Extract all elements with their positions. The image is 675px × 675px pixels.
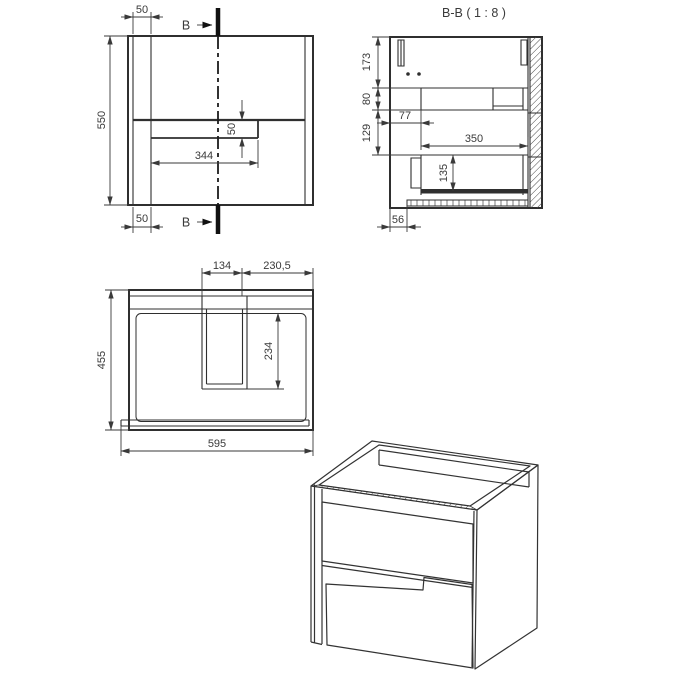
dim-cutout-width-label: 134: [213, 260, 231, 272]
dim-top-offset-label: 50: [136, 4, 148, 16]
section-plinth: [407, 200, 528, 206]
technical-drawing-canvas: B B 50 550 344 50 50 B-B ( 1 : 8 ): [0, 0, 675, 675]
dim-plinth-setback-label: 56: [392, 214, 404, 226]
dim-groove-height-label: 50: [226, 123, 238, 135]
drawing-sheet: B B 50 550 344 50 50 B-B ( 1 : 8 ): [0, 0, 675, 675]
section-letter-top: B: [182, 19, 190, 33]
dim-width-label: 595: [208, 438, 226, 450]
section-view: B-B ( 1 : 8 ) 173 80 129 77 350 135 56: [361, 6, 542, 232]
dim-back-gap-label: 77: [399, 110, 411, 122]
section-view-title: B-B ( 1 : 8 ): [442, 6, 506, 20]
dim-apron-height-label: 80: [361, 93, 373, 105]
top-view-inner-outline: [136, 314, 306, 422]
isometric-view: [311, 441, 538, 669]
dim-drawer-depth-label: 350: [465, 133, 483, 145]
dim-top-clearance-label: 173: [361, 53, 373, 71]
iso-front-rail-hatch: [311, 485, 477, 510]
top-view: 134 230,5 455 234 595: [96, 260, 313, 456]
section-letter-bottom: B: [182, 216, 190, 230]
iso-drawer-gap-line: [322, 566, 473, 588]
section-drawer-bottom: [421, 189, 528, 194]
dim-edge-distance-label: 230,5: [263, 260, 291, 272]
dim-groove-width-label: 344: [195, 150, 213, 162]
dim-height-label: 550: [96, 111, 108, 129]
front-handle-groove: [151, 120, 258, 138]
dim-cutout-depth-label: 234: [263, 342, 275, 360]
iso-upper-drawer-front: [322, 502, 473, 583]
front-view: B B 50 550 344 50 50: [96, 4, 313, 234]
top-view-outline: [129, 290, 313, 430]
section-structure-lines: [398, 37, 542, 208]
section-screw-hole-left: [406, 72, 410, 76]
iso-top-rim-inner: [319, 445, 530, 506]
iso-left-side-strip: [311, 485, 322, 645]
section-screw-hole-right: [417, 72, 421, 76]
dim-drawer-inner-height-label: 135: [438, 164, 450, 182]
iso-lower-drawer-front: [326, 578, 473, 669]
dim-middle-clearance-label: 129: [361, 124, 373, 142]
dim-depth-label: 455: [96, 351, 108, 369]
dim-bottom-offset-label: 50: [136, 213, 148, 225]
section-cabinet-outline: [390, 37, 542, 208]
iso-right-side-panel: [475, 465, 538, 669]
top-view-structure-lines: [121, 296, 312, 426]
section-front-panel-hatch: [530, 37, 542, 208]
